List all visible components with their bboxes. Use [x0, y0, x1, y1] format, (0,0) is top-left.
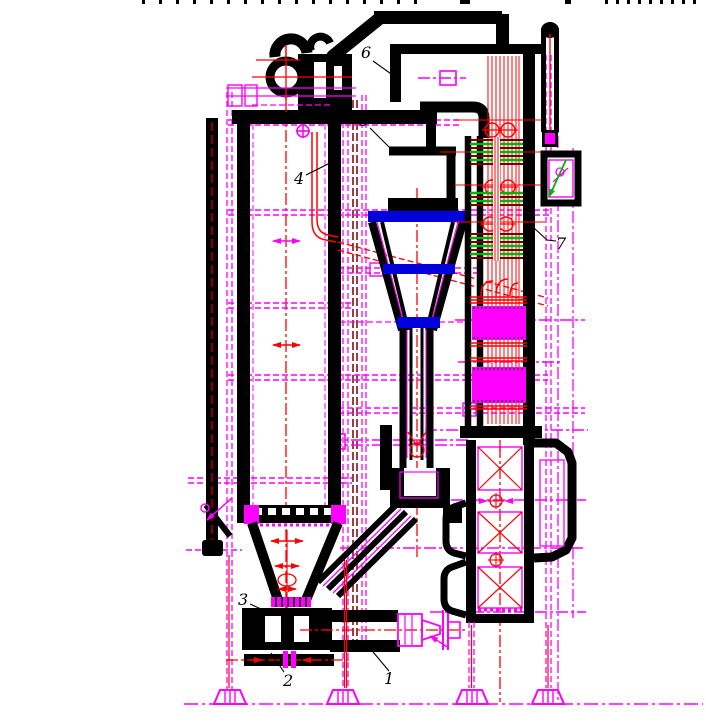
drawing-canvas: 1 2 3 4 5 6 7 — [0, 0, 706, 726]
callout-7: 7 — [556, 234, 567, 253]
column-foot — [327, 690, 359, 704]
callout-3: 3 — [238, 590, 248, 609]
column-foot — [214, 690, 246, 704]
column-foot — [532, 690, 564, 704]
throat-nozzles — [271, 597, 311, 607]
furnace — [232, 110, 354, 523]
roof-fitting-symbol — [296, 124, 310, 138]
callout-6: 6 — [361, 43, 371, 62]
callout-1: 1 — [384, 669, 394, 688]
boiler-general-arrangement-drawing: 1 2 3 4 5 6 7 — [0, 0, 706, 726]
column-foot — [456, 690, 488, 704]
callout-2: 2 — [282, 671, 293, 690]
convection-backpass — [390, 44, 560, 445]
callout-5: 5 — [359, 111, 369, 130]
air-heater — [444, 440, 572, 623]
cyclone-top-band — [368, 211, 467, 222]
callout-4: 4 — [293, 169, 304, 188]
cyclone-mid-band — [383, 264, 455, 274]
cyclone-bottom-band — [397, 317, 440, 328]
